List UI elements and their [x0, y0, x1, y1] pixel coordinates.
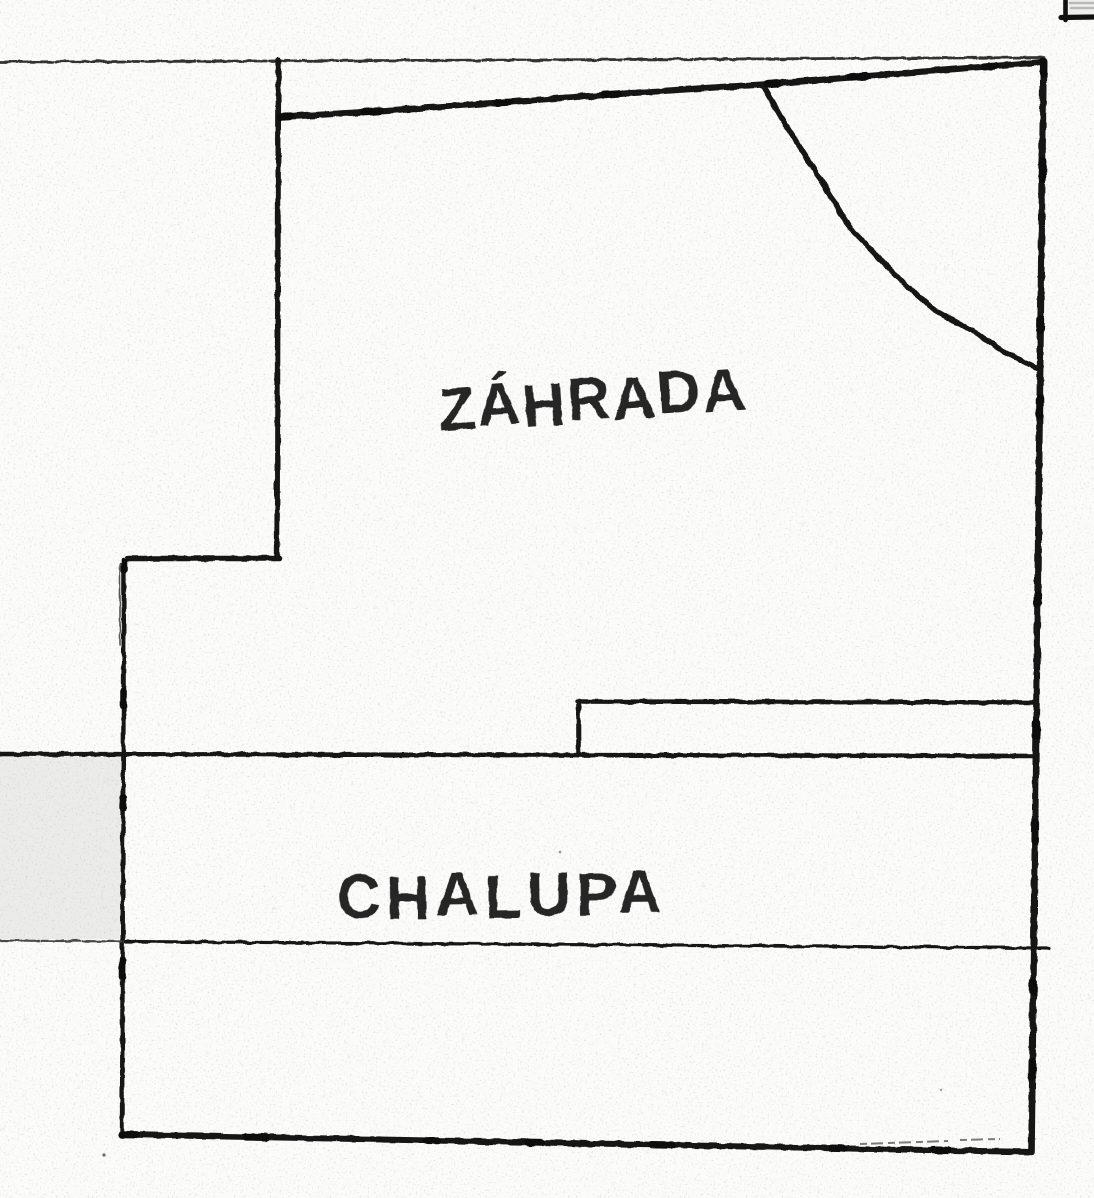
- svg-text:CHALUPA: CHALUPA: [336, 857, 667, 933]
